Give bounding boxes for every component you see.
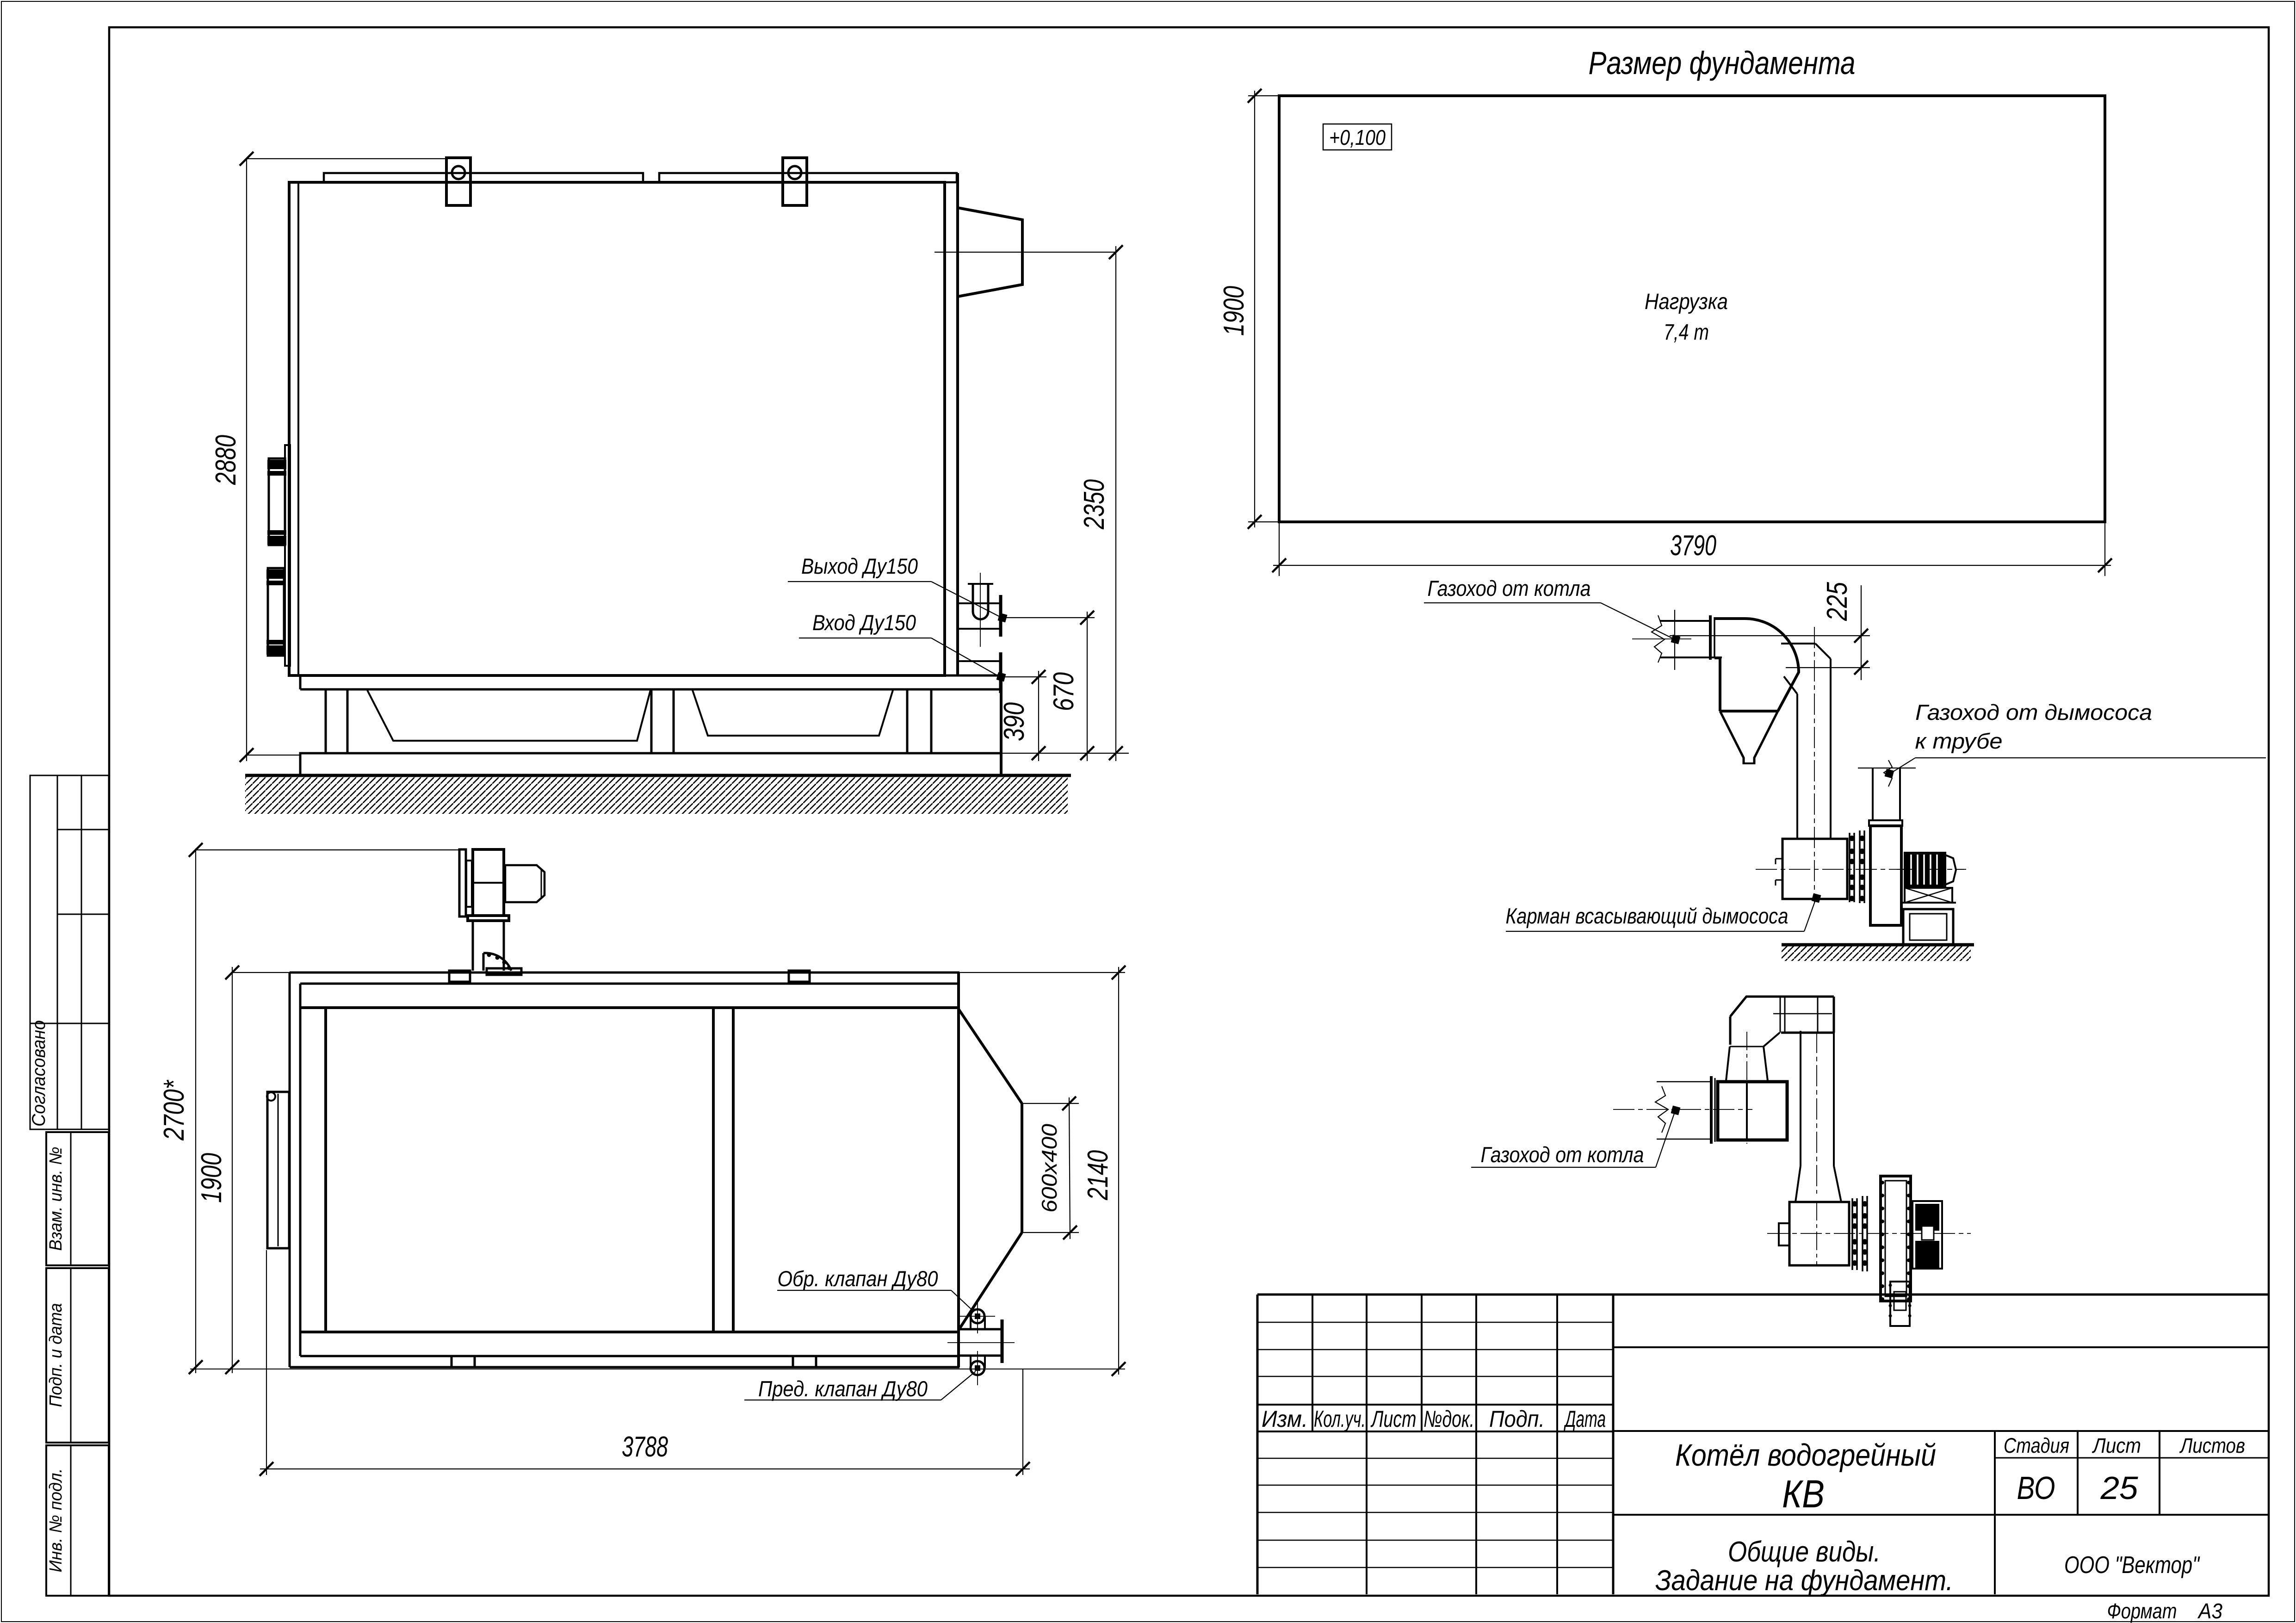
svg-text:Кол.уч.: Кол.уч. bbox=[1314, 1406, 1366, 1432]
svg-text:Изм.: Изм. bbox=[1262, 1406, 1308, 1432]
svg-text:225: 225 bbox=[1821, 582, 1853, 621]
svg-text:Лист: Лист bbox=[2092, 1434, 2141, 1457]
svg-text:670: 670 bbox=[1048, 672, 1080, 711]
svg-text:+0,100: +0,100 bbox=[1329, 125, 1386, 149]
svg-text:Стадия: Стадия bbox=[2004, 1434, 2069, 1457]
svg-text:Газоход от котла: Газоход от котла bbox=[1481, 1142, 1644, 1167]
svg-text:3788: 3788 bbox=[622, 1431, 668, 1463]
svg-text:Подп. и дата: Подп. и дата bbox=[46, 1303, 66, 1407]
svg-text:2140: 2140 bbox=[1082, 1150, 1114, 1201]
svg-text:Вход Ду150: Вход Ду150 bbox=[812, 610, 916, 635]
svg-text:Подп.: Подп. bbox=[1489, 1406, 1545, 1432]
svg-text:Листов: Листов bbox=[2179, 1434, 2245, 1457]
svg-text:2700*: 2700* bbox=[158, 1080, 190, 1141]
svg-text:600х400: 600х400 bbox=[1037, 1124, 1061, 1213]
svg-text:7,4 т: 7,4 т bbox=[1664, 320, 1709, 345]
svg-text:25: 25 bbox=[2100, 1470, 2138, 1506]
svg-text:№док.: №док. bbox=[1423, 1406, 1474, 1432]
svg-text:Общие виды.: Общие виды. bbox=[1728, 1536, 1881, 1568]
svg-text:А3: А3 bbox=[2197, 1599, 2222, 1623]
svg-text:Газоход от дымососа: Газоход от дымососа bbox=[1915, 700, 2152, 725]
svg-text:Задание на фундамент.: Задание на фундамент. bbox=[1655, 1565, 1953, 1597]
svg-text:1900: 1900 bbox=[1218, 286, 1250, 336]
svg-text:2880: 2880 bbox=[210, 435, 242, 485]
svg-text:Согласовано: Согласовано bbox=[29, 1020, 49, 1127]
svg-text:Размер фундамента: Размер фундамента bbox=[1589, 45, 1856, 81]
svg-text:Котёл водогрейный: Котёл водогрейный bbox=[1675, 1438, 1936, 1473]
svg-text:ООО "Вектор": ООО "Вектор" bbox=[2064, 1552, 2200, 1579]
svg-text:Нагрузка: Нагрузка bbox=[1645, 290, 1728, 314]
svg-text:Взам. инв. №: Взам. инв. № bbox=[46, 1147, 66, 1251]
svg-text:к трубе: к трубе bbox=[1915, 729, 2003, 753]
svg-text:Выход Ду150: Выход Ду150 bbox=[801, 554, 918, 578]
svg-text:КВ: КВ bbox=[1782, 1472, 1825, 1516]
svg-text:390: 390 bbox=[998, 702, 1030, 741]
svg-text:Газоход от котла: Газоход от котла bbox=[1428, 576, 1591, 601]
svg-text:2350: 2350 bbox=[1078, 479, 1110, 530]
svg-text:Карман всасывающий дымососа: Карман всасывающий дымососа bbox=[1506, 904, 1789, 928]
svg-text:Пред. клапан Ду80: Пред. клапан Ду80 bbox=[758, 1376, 928, 1401]
svg-text:1900: 1900 bbox=[196, 1153, 228, 1203]
svg-text:3790: 3790 bbox=[1670, 530, 1716, 562]
svg-text:Обр. клапан Ду80: Обр. клапан Ду80 bbox=[778, 1266, 938, 1291]
svg-text:Дата: Дата bbox=[1564, 1406, 1606, 1432]
svg-text:Инв. № подл.: Инв. № подл. bbox=[46, 1468, 66, 1573]
svg-text:Лист: Лист bbox=[1370, 1406, 1416, 1432]
svg-text:Формат: Формат bbox=[2107, 1599, 2177, 1623]
svg-text:ВО: ВО bbox=[2017, 1470, 2055, 1506]
